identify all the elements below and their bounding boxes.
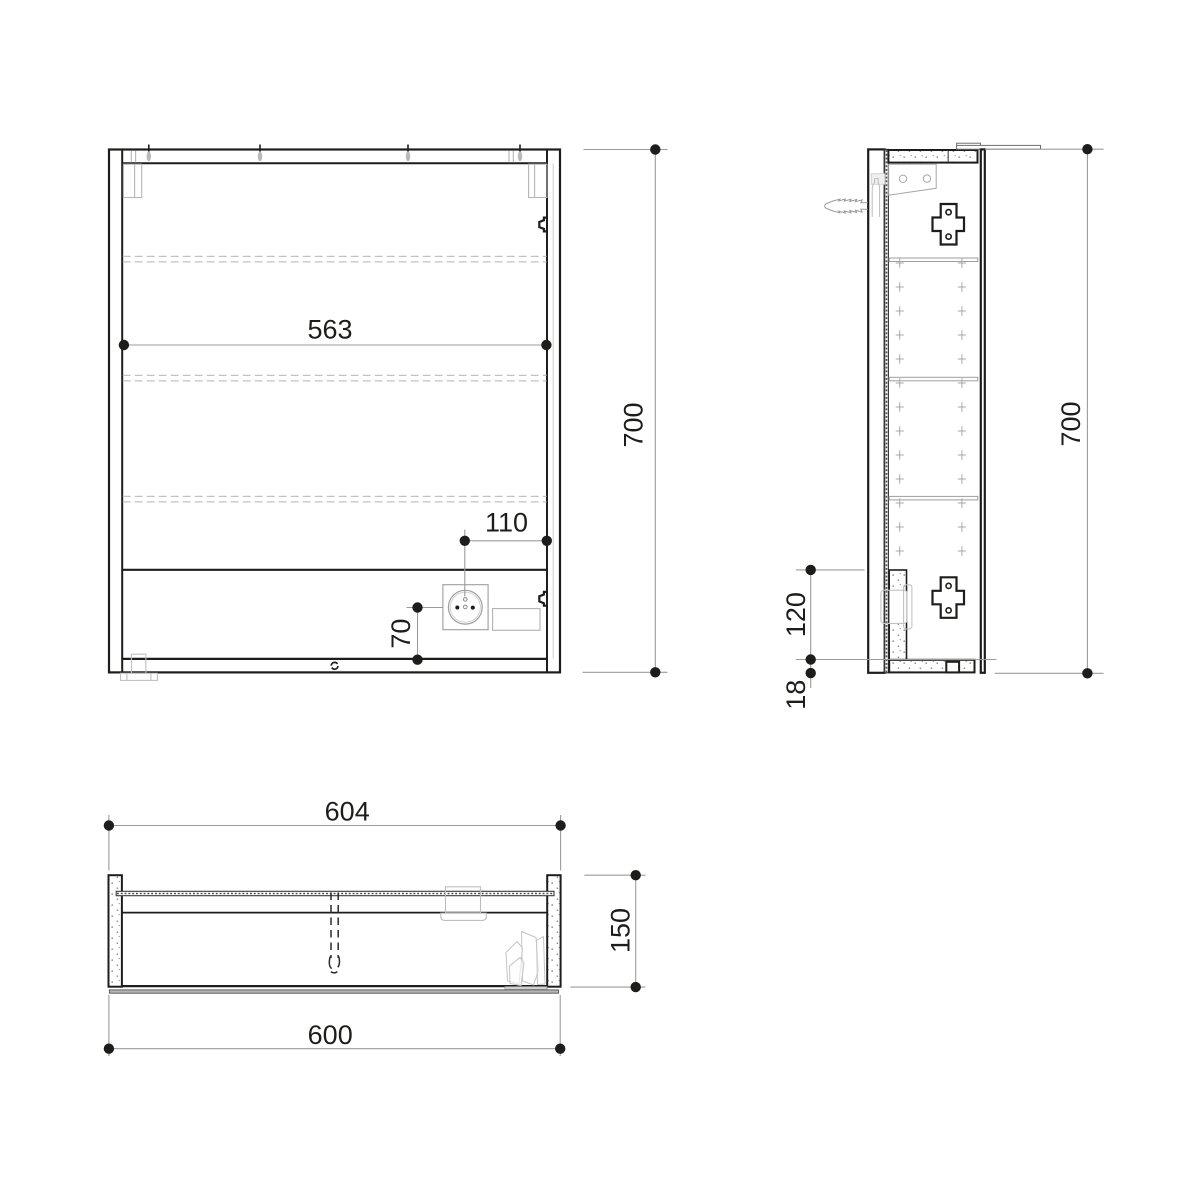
svg-text:70: 70 bbox=[386, 619, 416, 649]
svg-text:110: 110 bbox=[485, 508, 528, 538]
svg-text:150: 150 bbox=[605, 908, 635, 953]
svg-text:700: 700 bbox=[1056, 401, 1086, 446]
svg-text:604: 604 bbox=[325, 796, 370, 826]
svg-text:563: 563 bbox=[307, 315, 352, 345]
svg-text:600: 600 bbox=[308, 1020, 353, 1050]
svg-text:700: 700 bbox=[619, 402, 649, 447]
svg-text:18: 18 bbox=[781, 680, 811, 710]
svg-text:120: 120 bbox=[781, 592, 811, 637]
